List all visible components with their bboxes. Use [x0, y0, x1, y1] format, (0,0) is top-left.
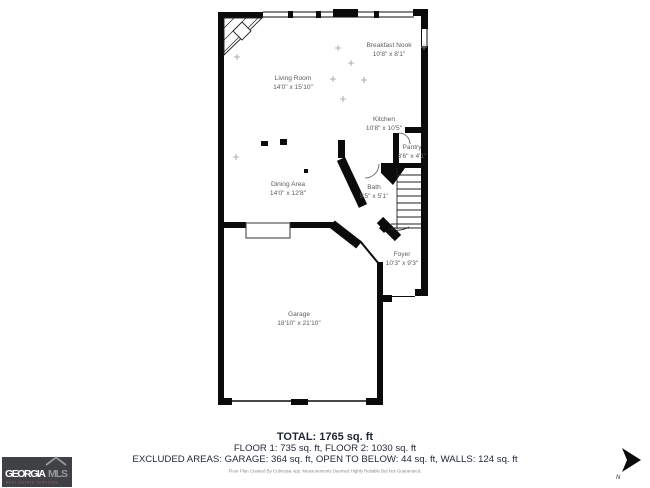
room-label-living-room-name: Living Room	[275, 75, 312, 82]
pantry-door-arc	[399, 133, 410, 144]
room-label-kitchen-dims: 10'8" x 10'5"	[366, 125, 403, 132]
logo-text-georgia: GEORGIA	[5, 468, 46, 480]
room-label-bath-dims: 5'5" x 5'1"	[360, 193, 389, 200]
bath-door-arc	[365, 164, 379, 178]
summary-disclaimer: Floor Plan Created By Cubicasa App. Meas…	[229, 469, 422, 474]
floor-plan-page: Breakfast Nook 10'8" x 8'1" Living Room …	[0, 0, 650, 488]
summary-excluded: EXCLUDED AREAS: GARAGE: 364 sq. ft, OPEN…	[132, 454, 517, 465]
room-label-garage-name: Garage	[288, 311, 310, 318]
room-label-pantry-dims: 3'6" x 4'1"	[398, 153, 427, 160]
logo-text-mls: MLS	[48, 468, 68, 480]
interior-walls	[218, 127, 428, 245]
room-label-kitchen-name: Kitchen	[373, 116, 395, 123]
georgia-mls-logo: GEORGIA MLS REAL ESTATE SERVICES	[2, 457, 72, 487]
dining-opening	[246, 223, 290, 238]
room-label-dining-area-dims: 14'0" x 12'8"	[270, 190, 307, 197]
north-compass: N	[616, 448, 641, 481]
fireplace-hatch	[224, 18, 262, 55]
summary-total: TOTAL: 1765 sq. ft	[277, 431, 374, 443]
room-label-bath-name: Bath	[367, 184, 381, 191]
room-label-foyer-dims: 10'3" x 9'3"	[386, 260, 419, 267]
room-label-foyer-name: Foyer	[394, 251, 412, 258]
room-label-breakfast-nook-dims: 10'8" x 8'1"	[373, 51, 406, 58]
room-label-pantry-name: Pantry	[402, 144, 422, 151]
north-arrow-icon	[622, 448, 641, 472]
room-label-dining-area-name: Dining Area	[271, 181, 305, 188]
area-summary: TOTAL: 1765 sq. ft FLOOR 1: 735 sq. ft, …	[132, 431, 517, 474]
room-label-garage-dims: 18'10" x 21'10"	[277, 320, 321, 327]
room-label-breakfast-nook-name: Breakfast Nook	[366, 42, 412, 49]
floor-plan-drawing: Breakfast Nook 10'8" x 8'1" Living Room …	[0, 0, 650, 488]
room-label-living-room-dims: 14'0" x 15'10"	[273, 84, 313, 91]
fixture-marks	[261, 139, 308, 173]
compass-label: N	[616, 475, 621, 481]
summary-floors: FLOOR 1: 735 sq. ft, FLOOR 2: 1030 sq. f…	[234, 443, 417, 454]
logo-tagline: REAL ESTATE SERVICES	[6, 481, 58, 485]
